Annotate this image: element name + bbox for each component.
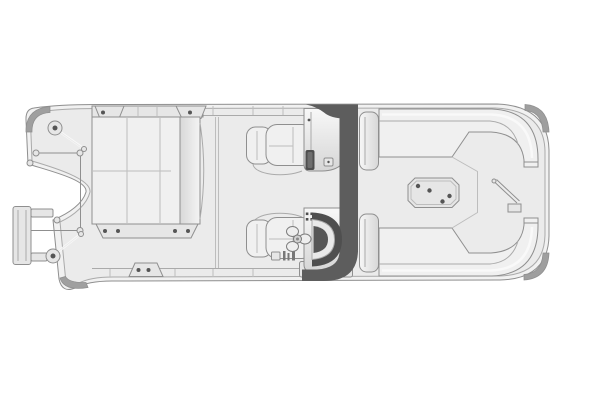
deck-cleat-plate: [129, 263, 163, 277]
console-latch: [324, 158, 333, 166]
starboard-armrest-panel: [360, 214, 379, 272]
pontoon-floor-plan: [0, 0, 600, 400]
bench-mount-plate: [96, 224, 198, 238]
bow-table: [408, 178, 459, 208]
port-armrest-panel: [360, 112, 379, 170]
boat-diagram: [0, 0, 600, 400]
hull-knuckle-upper: [27, 160, 33, 166]
stern-lounge-bench: [92, 106, 206, 238]
hull-knuckle-lower: [54, 217, 60, 223]
stern-lounge-chaise: [180, 117, 200, 224]
